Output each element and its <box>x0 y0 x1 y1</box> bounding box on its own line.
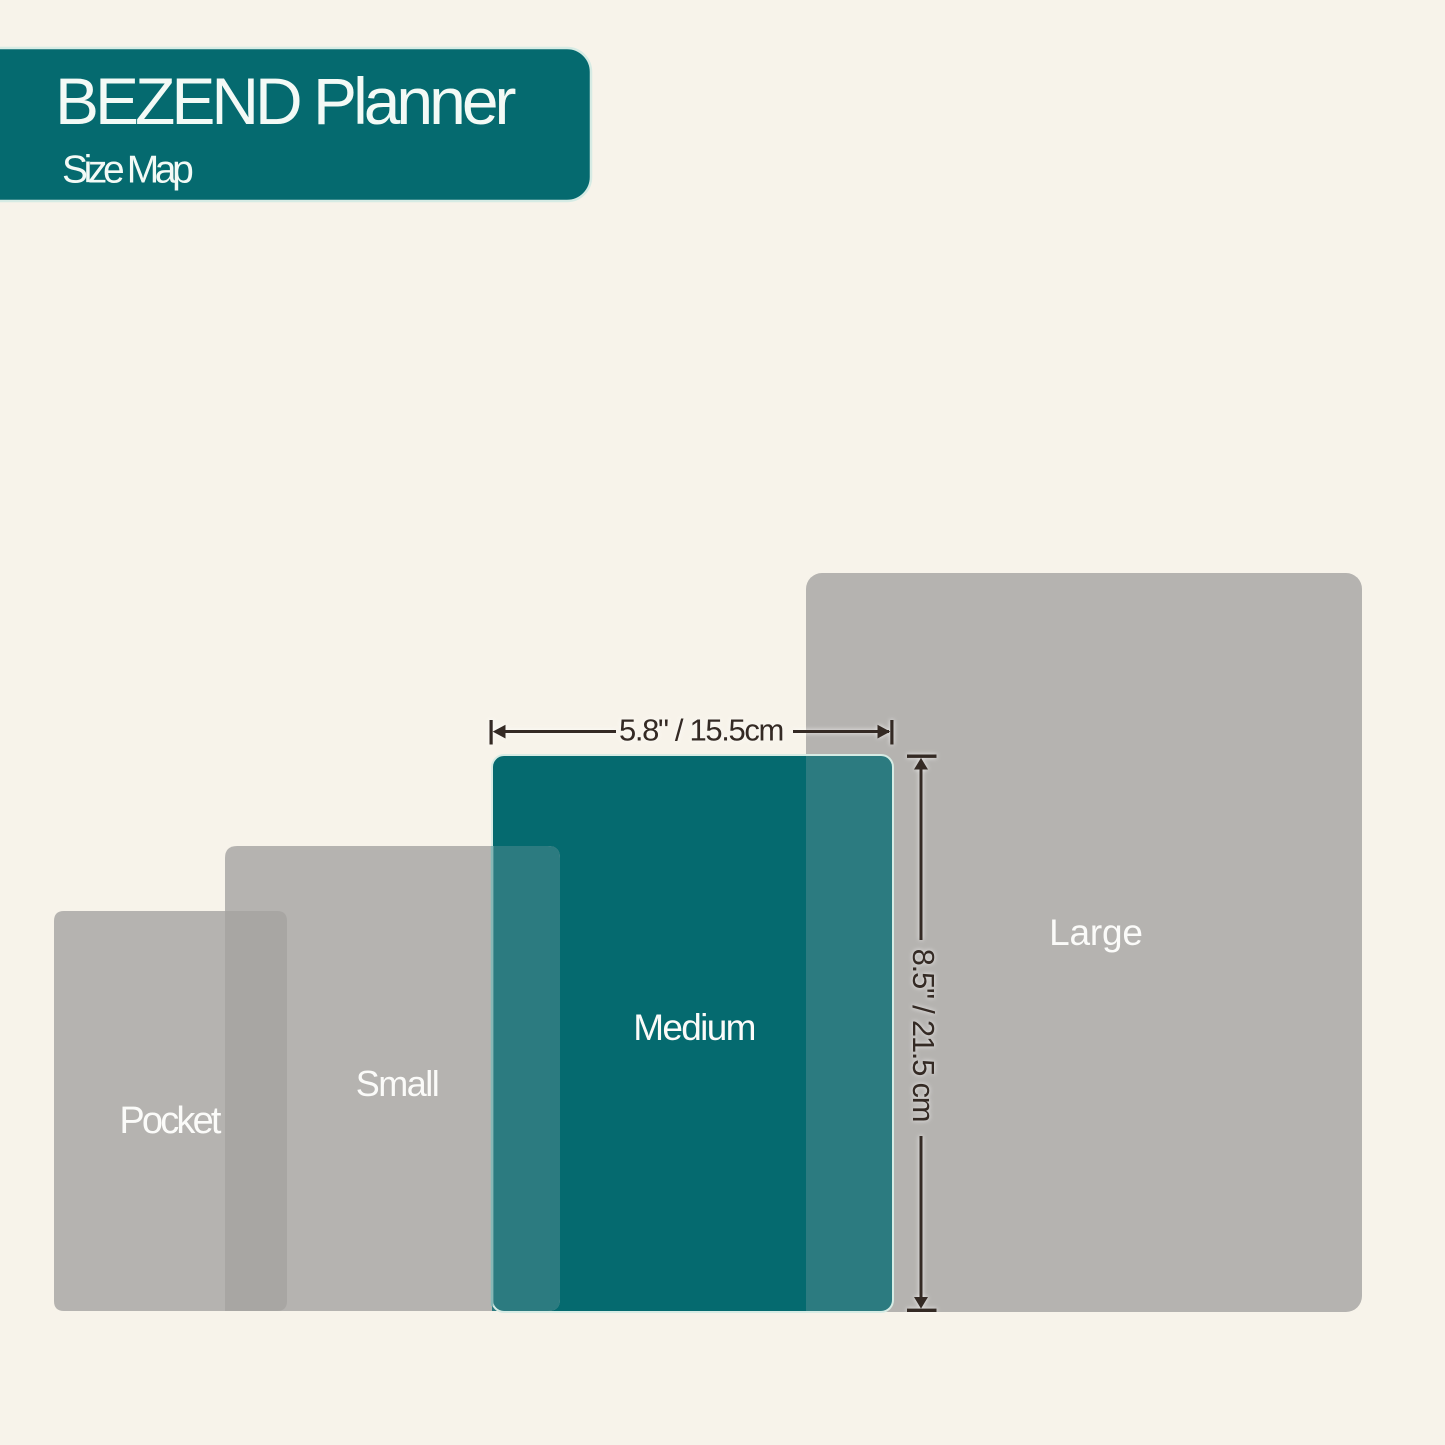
svg-text:Large: Large <box>1049 912 1143 953</box>
svg-text:Size Map: Size Map <box>62 149 193 192</box>
svg-text:Small: Small <box>356 1063 439 1104</box>
svg-text:BEZEND Planner: BEZEND Planner <box>55 64 516 138</box>
svg-text:Medium: Medium <box>633 1007 754 1048</box>
svg-text:Pocket: Pocket <box>119 1100 222 1142</box>
